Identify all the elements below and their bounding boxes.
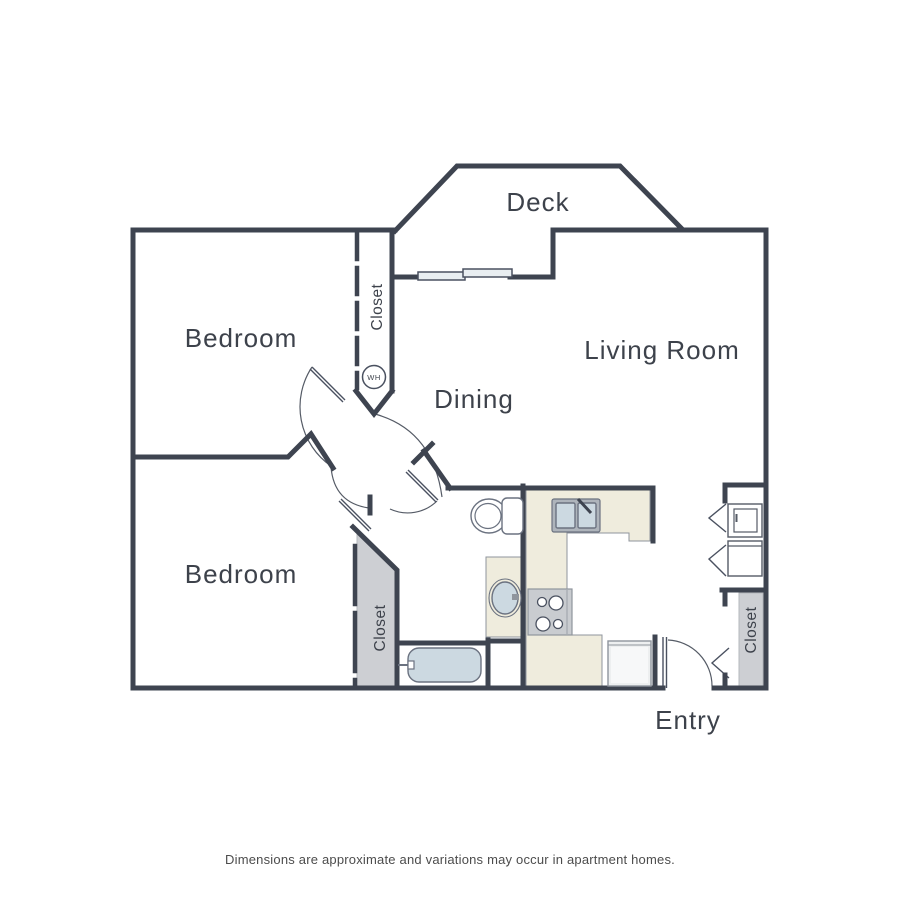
burner-icon	[549, 596, 563, 610]
sliding-door-pane-right	[463, 269, 512, 277]
entry-closet-label: Closet	[743, 606, 760, 653]
living-room-label: Living Room	[584, 335, 740, 365]
dining-label: Dining	[434, 384, 514, 414]
wall-right	[553, 230, 766, 688]
floor-plan-page: WH Deck Bedroom Living Room Dining Bedro…	[0, 0, 900, 900]
bedroom-upper-door-leaf	[310, 367, 345, 402]
kitchen-sink-icon	[552, 499, 600, 532]
bathtub-icon	[398, 648, 481, 682]
disclaimer-text: Dimensions are approximate and variation…	[225, 852, 675, 867]
bathroom-door-leaf	[406, 470, 438, 502]
entry-door-swing	[668, 640, 712, 686]
toilet-tank	[502, 498, 523, 534]
bedroom-lower-door-swing	[331, 467, 369, 508]
bedroom-lower-label: Bedroom	[185, 559, 298, 589]
outer-walls	[133, 166, 766, 688]
dryer-icon	[728, 541, 762, 576]
burner-icon	[536, 617, 550, 631]
interior-walls	[133, 230, 766, 688]
wall-bath-chase	[488, 640, 523, 688]
wall-laundry-top	[725, 485, 766, 501]
burner-icon	[538, 598, 547, 607]
washer-icon	[728, 504, 762, 537]
burner-icon	[554, 620, 563, 629]
bedroom-upper-label: Bedroom	[185, 323, 298, 353]
deck-label: Deck	[506, 187, 569, 217]
dryer-bifold-door-icon	[709, 545, 726, 576]
hall-closet-label: Closet	[369, 283, 386, 330]
bathroom-door-swing	[390, 501, 437, 513]
water-heater-icon: WH	[363, 366, 386, 389]
water-heater-label: WH	[367, 373, 381, 382]
bathroom-sink-icon	[489, 579, 521, 617]
bathroom-faucet-icon	[512, 594, 519, 600]
hall-door-swing	[375, 414, 442, 497]
stove-icon	[528, 589, 572, 635]
bedroom-closet-label: Closet	[372, 604, 389, 651]
wall-hall-closet-point	[356, 391, 392, 414]
toilet-icon	[471, 498, 523, 534]
sliding-glass-door	[418, 269, 512, 280]
washer-bifold-door-icon	[709, 504, 726, 532]
tub-faucet-icon	[408, 661, 414, 669]
entry-door-leaf	[663, 637, 667, 688]
refrigerator-icon	[608, 641, 651, 686]
wall-bath-diagonal	[424, 451, 450, 488]
floor-plan-canvas: WH Deck Bedroom Living Room Dining Bedro…	[0, 0, 900, 900]
sliding-door-pane-left	[418, 272, 465, 280]
entry-label: Entry	[655, 705, 721, 735]
wall-bedroom-divider	[133, 434, 333, 468]
